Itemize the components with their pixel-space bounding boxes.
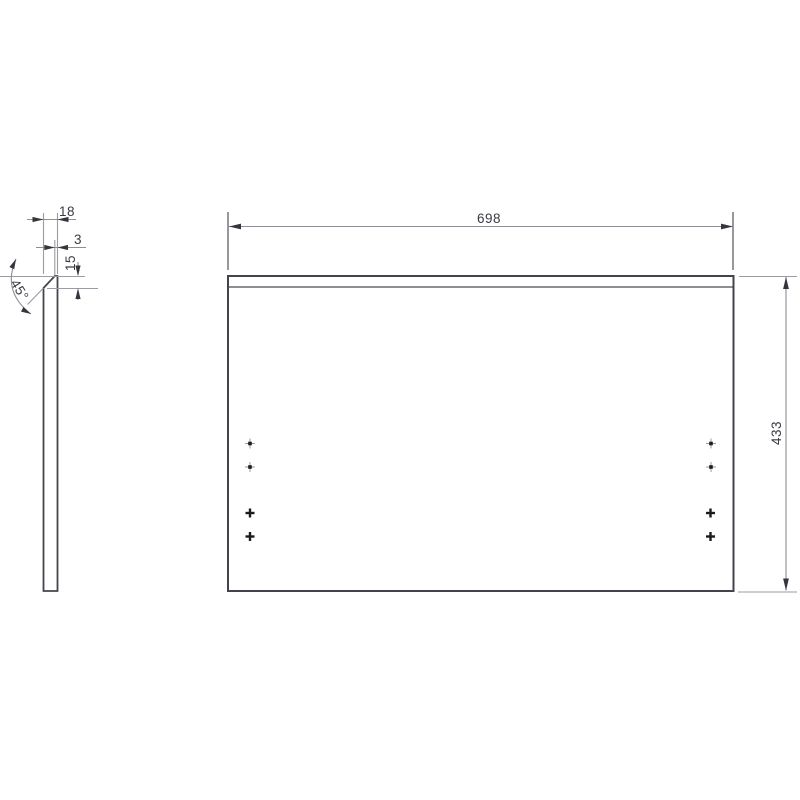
- dimension-thickness: 18: [27, 204, 76, 222]
- dimension-value-thickness: 18: [59, 204, 75, 219]
- hole-marker-cross: [706, 532, 715, 541]
- arrowhead: [44, 245, 55, 250]
- dimension-chamfer-depth: 15: [63, 255, 81, 300]
- arrowhead: [783, 277, 789, 289]
- arrowhead: [9, 259, 16, 269]
- drawing-page: 18 3 15 45°: [0, 0, 800, 800]
- dot: [248, 442, 252, 446]
- cross-bar: [709, 532, 711, 541]
- cross-bar: [709, 509, 711, 518]
- arrowhead: [33, 217, 44, 222]
- dot: [709, 465, 713, 469]
- profile-outline: [44, 276, 58, 591]
- cross-bar: [249, 532, 251, 541]
- hole-marker-cross: [706, 509, 715, 518]
- dimension-width: 698: [228, 211, 733, 270]
- dimension-chamfer-angle: 45°: [7, 259, 31, 314]
- hole-marker-cross: [246, 532, 255, 541]
- dimension-value-edge-flat: 3: [74, 232, 82, 247]
- dot: [248, 465, 252, 469]
- side-profile-view: [28, 276, 58, 591]
- arrowhead: [229, 224, 241, 230]
- arrowhead: [721, 224, 733, 230]
- hole-marker-cross: [246, 509, 255, 518]
- arrowhead: [75, 289, 80, 300]
- dimension-height: 433: [738, 277, 797, 593]
- hole-marker-dot: [245, 462, 255, 472]
- arrowhead: [783, 579, 789, 591]
- hole-marker-dot: [245, 439, 255, 449]
- hole-marker-dot: [706, 462, 716, 472]
- hole-markers-crosses: [246, 509, 716, 542]
- hole-marker-dot: [706, 439, 716, 449]
- cad-drawing-canvas: 18 3 15 45°: [0, 0, 800, 800]
- dimension-value-height: 433: [769, 421, 784, 445]
- front-view: [228, 276, 734, 591]
- arrowhead: [21, 307, 31, 314]
- cross-bar: [249, 509, 251, 518]
- profile-extension-lines: [0, 213, 98, 289]
- dimension-value-width: 698: [477, 211, 501, 226]
- hole-markers-dots: [245, 439, 716, 473]
- panel-face-outline: [228, 276, 734, 591]
- dimension-value-chamfer-depth: 15: [63, 255, 78, 271]
- arrowhead: [58, 245, 69, 250]
- dot: [709, 442, 713, 446]
